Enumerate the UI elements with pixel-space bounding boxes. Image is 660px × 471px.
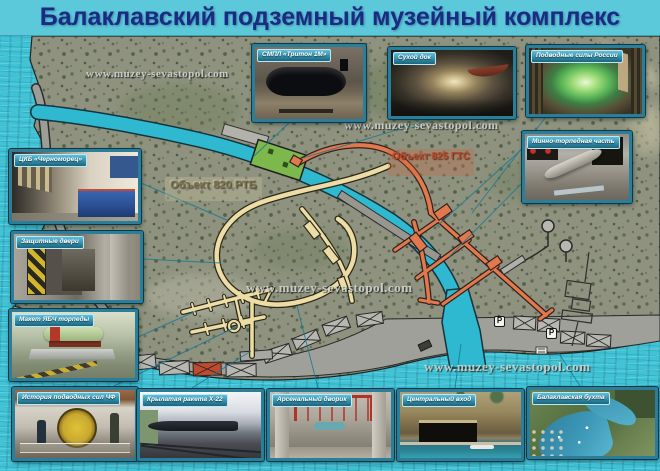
watermark: www.muzey-sevastopol.com xyxy=(86,68,229,80)
title-band: Балаклавский подземный музейный комплекс xyxy=(0,0,660,36)
photo-caption: История подводных сил ЧФ xyxy=(17,392,120,405)
photo-caption: Макет ЯБЧ торпеды xyxy=(14,314,94,327)
photo-caption: Крылатая ракета Х-22 xyxy=(142,394,228,407)
poster-title: Балаклавский подземный музейный комплекс xyxy=(40,3,620,32)
object-820-label: Объект 820 РТБ xyxy=(165,177,262,201)
photo-caption: Балаклавская бухта xyxy=(532,392,610,405)
photo-caption: Защитные двери xyxy=(16,236,84,249)
photo-caption: Центральный вход xyxy=(402,394,476,407)
photo-caption: Сухой док xyxy=(393,52,436,65)
photo-entrance: Центральный вход xyxy=(397,389,524,461)
photo-doors: Защитные двери xyxy=(11,231,143,303)
photo-arsenal: Арсенальный дворик xyxy=(267,389,394,461)
watermark: www.muzey-sevastopol.com xyxy=(344,118,499,133)
photo-history: История подводных сил ЧФ xyxy=(12,387,138,461)
photo-caption: Арсенальный дворик xyxy=(272,394,352,407)
red-building xyxy=(193,362,221,376)
photo-triton: СМПЛ «Тритон 1М» xyxy=(252,44,366,122)
poster: Балаклавский подземный музейный комплекс… xyxy=(0,0,660,471)
photo-caption: Подводные силы России xyxy=(531,50,623,63)
object-825-label: Объект 825 ГТС xyxy=(388,149,474,176)
photo-warhead: Макет ЯБЧ торпеды xyxy=(9,309,138,381)
watermark: www.muzey-sevastopol.com xyxy=(424,359,591,375)
photo-bay: Балаклавская бухта xyxy=(527,387,658,459)
photo-subforces: Подводные силы России xyxy=(526,45,645,117)
photo-missile: Крылатая ракета Х-22 xyxy=(137,389,264,461)
parking-sign: P xyxy=(546,328,557,339)
photo-torpedo-section: Минно-торпедная часть xyxy=(522,131,632,203)
photo-caption: Минно-торпедная часть xyxy=(527,136,620,149)
parking-sign: P xyxy=(494,316,505,327)
bus-stop-sign xyxy=(536,347,547,354)
photo-caption: СМПЛ «Тритон 1М» xyxy=(257,49,331,62)
photo-drydock: Сухой док xyxy=(388,47,516,119)
photo-ckb: ЦКБ «Черноморец» xyxy=(9,149,141,224)
watermark: www.muzey-sevastopol.com xyxy=(246,280,413,296)
photo-caption: ЦКБ «Черноморец» xyxy=(14,154,87,167)
